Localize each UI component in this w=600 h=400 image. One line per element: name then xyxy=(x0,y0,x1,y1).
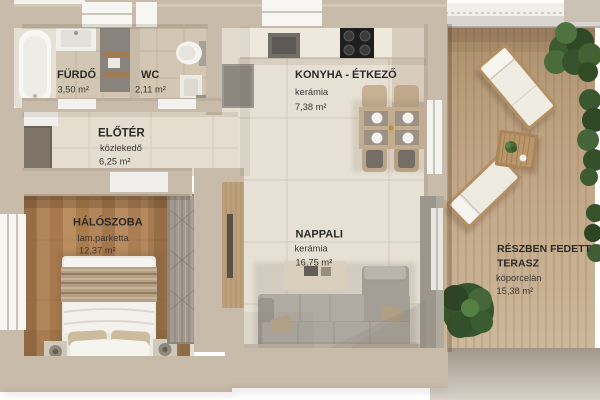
svg-text:kerámia: kerámia xyxy=(295,244,329,254)
svg-text:ELŐTÉR: ELŐTÉR xyxy=(98,127,145,140)
svg-text:7,38 m²: 7,38 m² xyxy=(295,102,327,112)
svg-text:2,11 m²: 2,11 m² xyxy=(135,85,166,95)
svg-text:6,25 m²: 6,25 m² xyxy=(99,157,131,167)
svg-text:12,37 m²: 12,37 m² xyxy=(79,246,116,256)
svg-text:NAPPALI: NAPPALI xyxy=(296,229,343,241)
svg-text:WC: WC xyxy=(141,69,159,81)
svg-text:16,75 m²: 16,75 m² xyxy=(296,258,333,268)
svg-text:kerámia: kerámia xyxy=(295,87,329,97)
svg-text:közlekedő: közlekedő xyxy=(100,143,142,153)
svg-text:RÉSZBEN FEDETT: RÉSZBEN FEDETT xyxy=(497,242,592,255)
svg-text:15,38 m²: 15,38 m² xyxy=(497,286,534,296)
svg-text:KONYHA - ÉTKEZŐ: KONYHA - ÉTKEZŐ xyxy=(295,68,397,81)
svg-text:3,50 m²: 3,50 m² xyxy=(58,85,90,95)
svg-text:HÁLÓSZOBA: HÁLÓSZOBA xyxy=(73,216,143,229)
svg-text:lam.parketta: lam.parketta xyxy=(78,233,130,243)
svg-text:FÜRDŐ: FÜRDŐ xyxy=(57,68,97,81)
svg-text:köporcelán: köporcelán xyxy=(496,273,541,283)
svg-text:TERASZ: TERASZ xyxy=(497,258,540,270)
